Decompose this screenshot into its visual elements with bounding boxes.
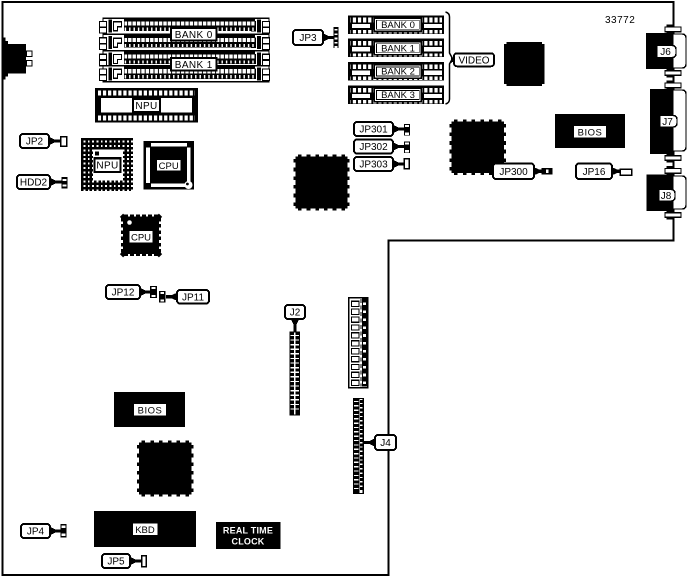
svg-text:NPU: NPU	[96, 161, 118, 172]
svg-text:JP300: JP300	[499, 167, 528, 178]
svg-text:JP303: JP303	[359, 160, 388, 171]
svg-text:NPU: NPU	[135, 101, 157, 112]
svg-text:J4: J4	[380, 438, 391, 449]
svg-text:33772: 33772	[605, 15, 635, 26]
svg-text:CPU: CPU	[159, 161, 179, 172]
svg-text:JP12: JP12	[112, 288, 135, 299]
svg-text:JP3: JP3	[299, 33, 317, 44]
svg-text:JP16: JP16	[583, 167, 606, 178]
svg-text:BANK 3: BANK 3	[381, 90, 415, 101]
svg-text:JP4: JP4	[27, 527, 45, 538]
svg-text:BANK 1: BANK 1	[175, 60, 213, 71]
svg-text:J8: J8	[661, 191, 672, 202]
svg-text:JP302: JP302	[359, 142, 388, 153]
svg-text:J7: J7	[662, 117, 673, 128]
svg-text:JP11: JP11	[182, 292, 204, 303]
svg-text:JP2: JP2	[26, 137, 44, 148]
svg-text:CLOCK: CLOCK	[232, 537, 265, 547]
svg-text:REAL TIME: REAL TIME	[223, 526, 273, 536]
svg-text:BANK 2: BANK 2	[381, 67, 415, 78]
svg-text:CPU: CPU	[131, 232, 151, 243]
svg-text:HDD2: HDD2	[20, 178, 48, 189]
svg-text:VIDEO: VIDEO	[458, 55, 489, 66]
svg-text:BANK 0: BANK 0	[175, 30, 213, 41]
svg-text:JP301: JP301	[359, 125, 388, 136]
svg-text:BIOS: BIOS	[578, 128, 603, 139]
svg-text:KBD: KBD	[135, 525, 155, 536]
svg-text:BIOS: BIOS	[138, 406, 163, 417]
svg-text:BANK 1: BANK 1	[381, 43, 415, 54]
svg-text:BANK 0: BANK 0	[381, 20, 415, 31]
svg-text:J2: J2	[290, 308, 301, 319]
svg-text:J6: J6	[660, 47, 671, 58]
svg-text:JP5: JP5	[107, 557, 125, 568]
